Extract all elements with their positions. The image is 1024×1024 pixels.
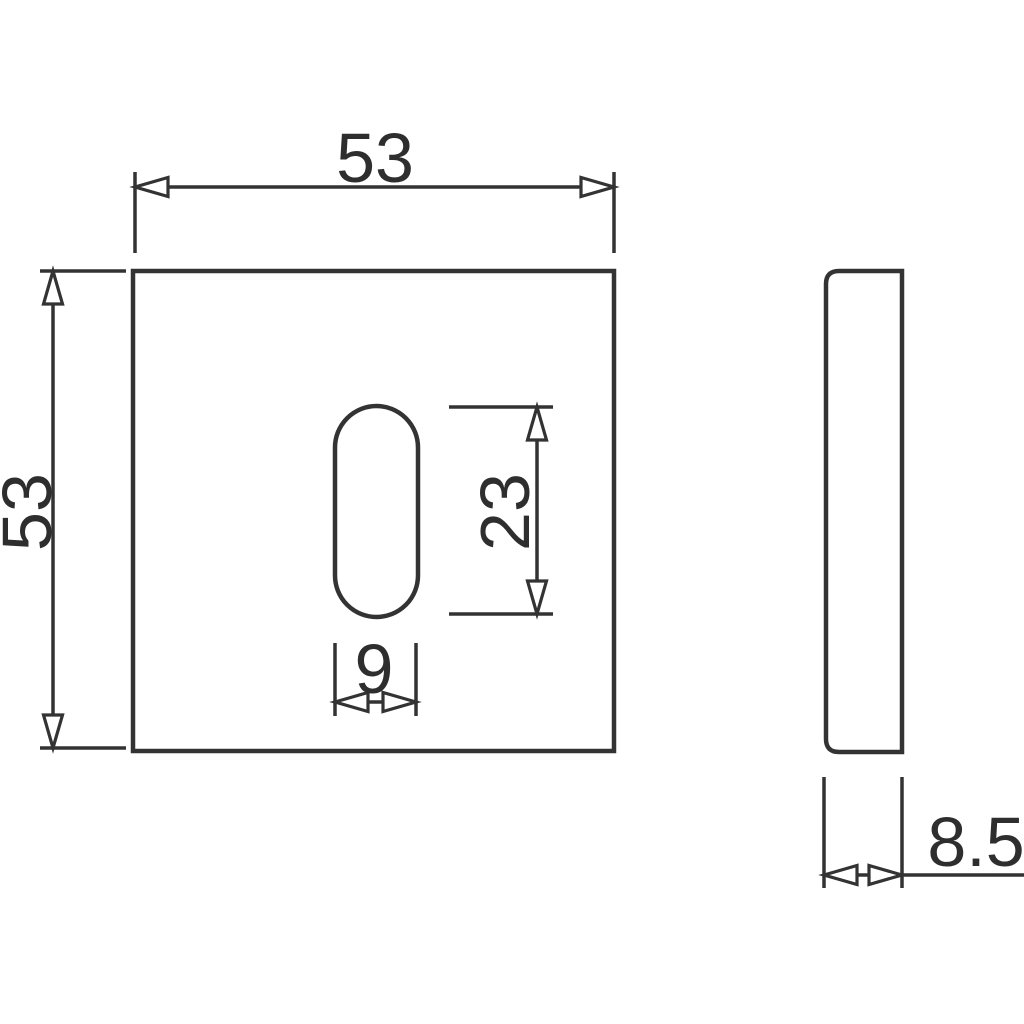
arrowhead-down-icon [44,715,63,748]
dim-plate-width: 53 [135,119,614,253]
dim-value-thickness: 8.5 [927,803,1024,881]
arrowhead-left-icon [135,178,168,197]
arrowhead-up-icon [528,407,547,440]
plate-profile-outline [826,271,902,752]
dim-plate-height: 53 [0,271,126,748]
arrowhead-down-icon [528,581,547,614]
keyhole-slot [335,406,418,617]
drawing-sheet: 53 53 23 9 [0,0,1024,1024]
technical-drawing: 53 53 23 9 [0,0,1024,1024]
arrowhead-right-icon [869,866,902,885]
arrowhead-left-icon [824,866,857,885]
arrowhead-up-icon [44,271,63,304]
dim-value-plate-width: 53 [336,119,414,197]
dim-value-slot-height: 23 [466,473,544,551]
dim-slot-height: 23 [449,407,553,614]
dim-slot-width: 9 [335,630,416,716]
dim-thickness: 8.5 [824,777,1024,888]
side-view [826,271,902,752]
dim-value-plate-height: 53 [0,473,66,551]
arrowhead-right-icon [581,178,614,197]
dim-value-slot-width: 9 [355,630,394,708]
